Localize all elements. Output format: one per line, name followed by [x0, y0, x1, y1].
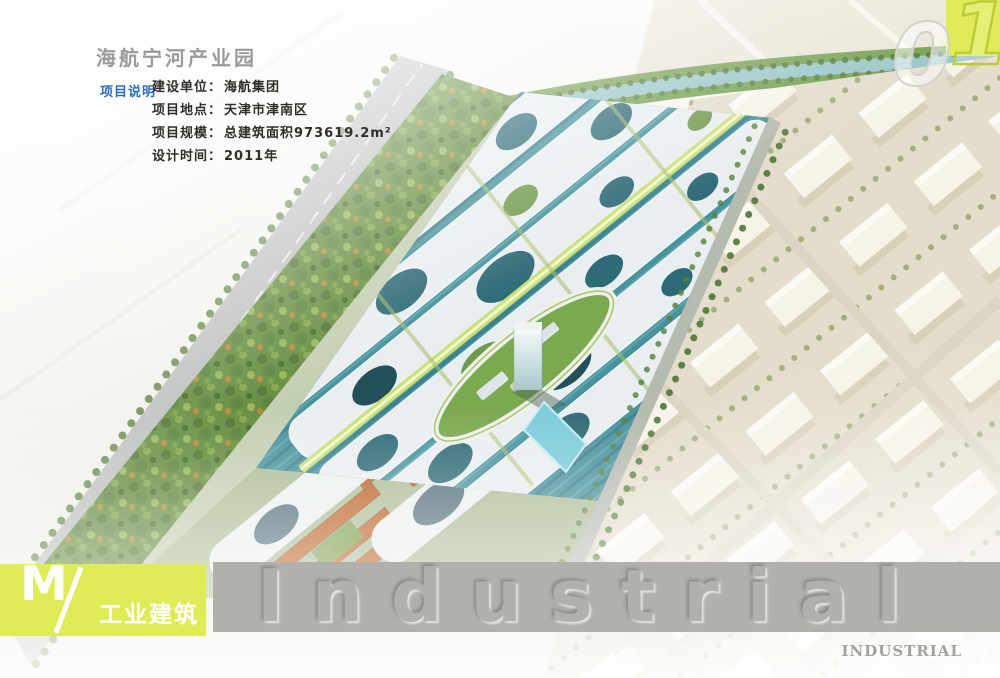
info-value: 天津市津南区 — [224, 103, 308, 118]
presentation-page: 0 1 海航宁河产业园 项目说明 建设单位：海航集团 项目地点：天津市津南区 项… — [0, 0, 1000, 678]
page-number-one: 1 — [950, 0, 1000, 85]
category-block: M 工业建筑 — [0, 564, 206, 636]
info-value: 2011年 — [224, 149, 278, 164]
info-label: 项目规模： — [152, 126, 222, 141]
info-row-scale: 项目规模：总建筑面积973619.2m² — [152, 127, 392, 140]
page-number-zero: 0 — [892, 6, 952, 106]
info-label: 项目地点： — [152, 103, 222, 118]
info-label: 建设单位： — [152, 80, 222, 95]
info-label: 设计时间： — [152, 149, 222, 164]
project-info: 建设单位：海航集团 项目地点：天津市津南区 项目规模：总建筑面积973619.2… — [152, 81, 392, 173]
category-label: 工业建筑 — [99, 595, 199, 629]
page-title: 海航宁河产业园 — [96, 42, 257, 71]
corner-industrial-label: INDUSTRIAL — [842, 642, 962, 660]
footer-gray-strip: Industrial — [213, 562, 1000, 632]
category-letter: M — [20, 558, 68, 610]
info-value: 海航集团 — [224, 80, 280, 95]
info-row-builder: 建设单位：海航集团 — [152, 81, 392, 94]
info-value: 总建筑面积973619.2m² — [224, 126, 392, 141]
section-label: 项目说明 — [100, 81, 156, 100]
info-row-location: 项目地点：天津市津南区 — [152, 104, 392, 117]
info-row-date: 设计时间：2011年 — [152, 150, 392, 163]
watermark-text: Industrial — [257, 564, 929, 628]
